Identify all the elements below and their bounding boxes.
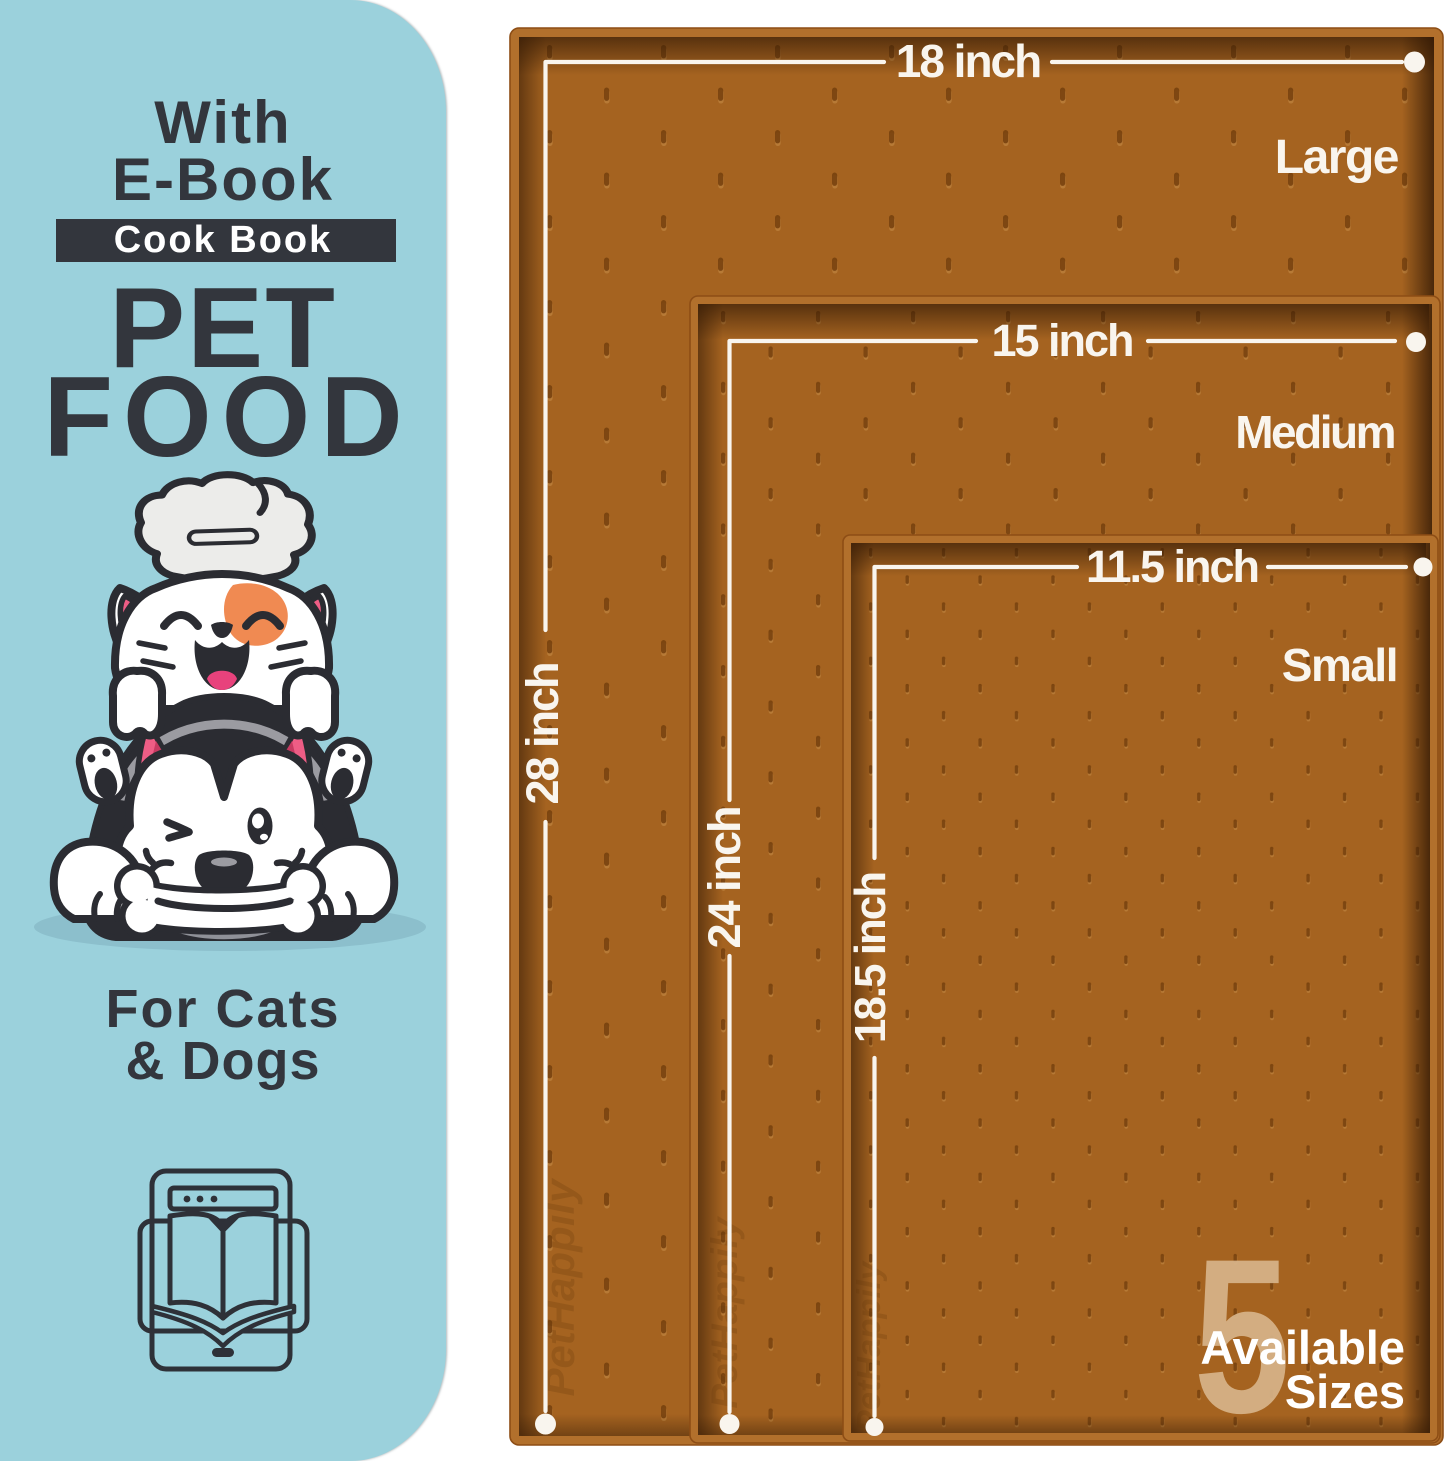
svg-text:PetHappily: PetHappily xyxy=(850,1260,887,1432)
svg-text:Sizes: Sizes xyxy=(1285,1365,1405,1418)
svg-text:11.5 inch: 11.5 inch xyxy=(1086,541,1258,592)
svg-text:Large: Large xyxy=(1275,131,1399,184)
svg-text:Small: Small xyxy=(1282,639,1397,691)
svg-text:24 inch: 24 inch xyxy=(699,807,750,948)
svg-text:15 inch: 15 inch xyxy=(991,315,1132,366)
svg-text:28 inch: 28 inch xyxy=(517,663,568,804)
svg-text:PetHappily: PetHappily xyxy=(704,1215,745,1409)
svg-text:PetHappily: PetHappily xyxy=(536,1177,583,1397)
svg-text:18 inch: 18 inch xyxy=(896,35,1041,87)
svg-text:Medium: Medium xyxy=(1235,406,1394,458)
svg-text:18.5 inch: 18.5 inch xyxy=(846,873,895,1043)
